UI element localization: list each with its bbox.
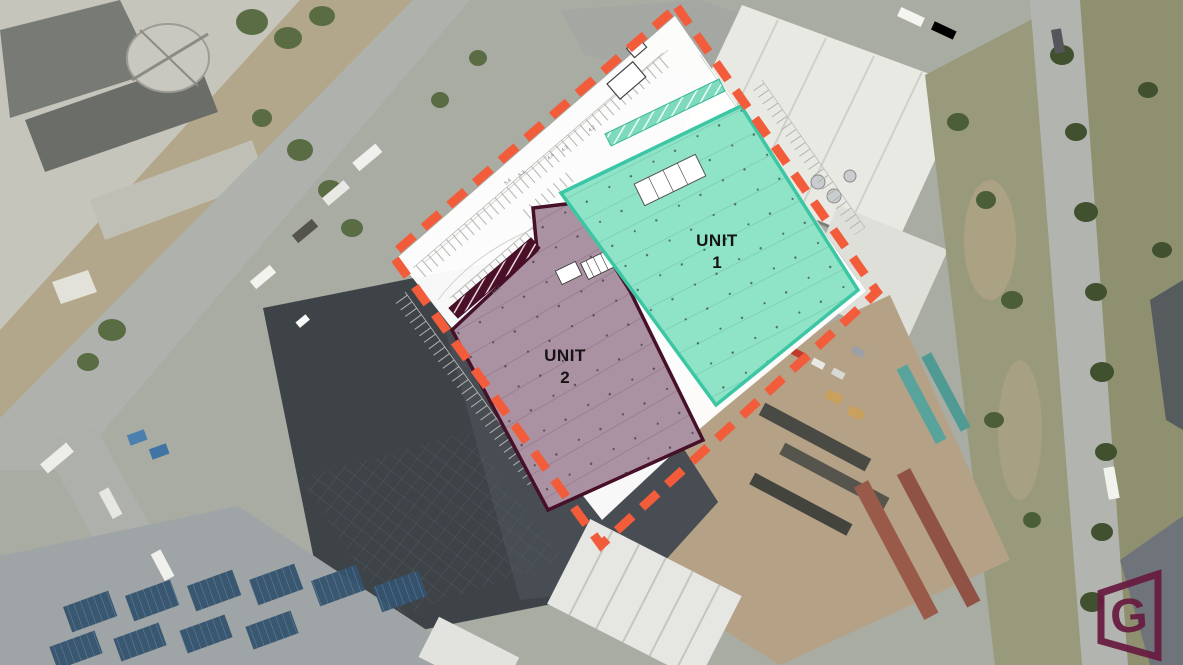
unit-2-number: 2 (560, 368, 569, 387)
aerial-site-plan-image: UNIT 2 UNIT 1 5.4 5.3 4.4 4.3 4.2 (0, 0, 1183, 665)
site-plan-canvas: UNIT 2 UNIT 1 5.4 5.3 4.4 4.3 4.2 (0, 0, 1183, 665)
unit-2-label: UNIT (544, 346, 586, 365)
unit-1-number: 1 (712, 253, 721, 272)
logo-letter: G (1108, 589, 1149, 644)
unit-1-label: UNIT (696, 231, 738, 250)
